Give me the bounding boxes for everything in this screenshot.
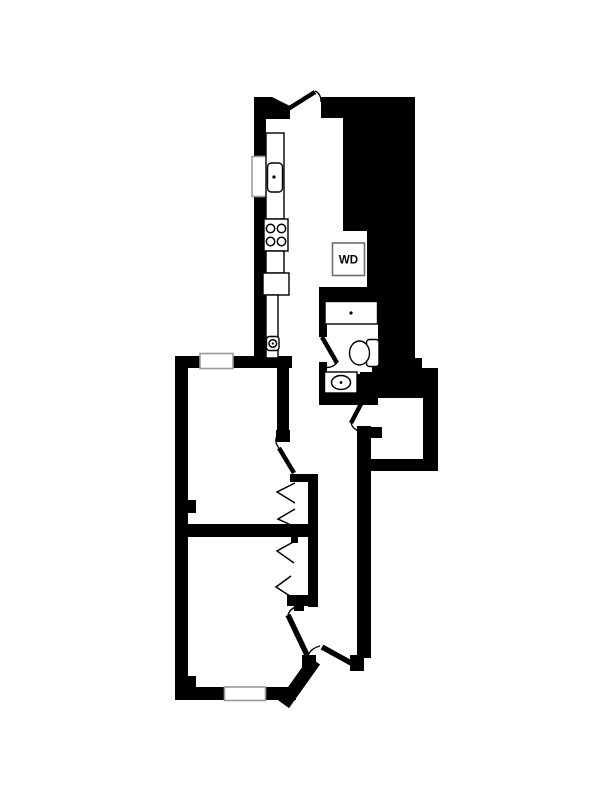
wall-rear-room-corner [415, 368, 438, 378]
closet-bifold-3 [277, 541, 295, 563]
wall-corridor-end-jamb [350, 655, 364, 671]
floor-plan-drawing: WD [0, 0, 612, 792]
entry-door-swing [315, 91, 321, 102]
washer-dryer-label: WD [339, 255, 358, 267]
kitchen [263, 133, 289, 358]
upper-room-door-leaf [279, 448, 294, 473]
jamb-upper-room-door [276, 430, 290, 442]
kitchen-counter-mid [266, 251, 284, 273]
wall-corridor-right-lower [357, 426, 371, 658]
window-lower-room [225, 687, 266, 701]
washer-dryer: WD [333, 243, 365, 276]
wall-right-of-wd [367, 231, 415, 292]
kitchen-sink-drain [272, 175, 275, 178]
wall-closet-right [308, 474, 318, 607]
corridor-door-leaf [322, 647, 351, 663]
toilet-bowl [350, 341, 370, 365]
vanity-drain [340, 381, 343, 384]
wall-rear-room-stub [357, 427, 382, 438]
closet-bifold-4 [276, 576, 293, 598]
window-kitchen [252, 157, 267, 197]
walls [175, 97, 438, 700]
jamb-chamfer-door [302, 655, 316, 669]
closet-bifold-2 [278, 509, 295, 526]
bathroom-door-leaf [322, 337, 337, 363]
wall-top-bar [321, 97, 415, 118]
rear-room-door-leaf [351, 404, 361, 423]
corridor-door-swing [308, 646, 320, 655]
wall-bath-top [319, 287, 415, 301]
floor-plan-page: WD [0, 0, 612, 792]
lower-room-door-leaf [288, 615, 307, 655]
wall-corridor-right-upper [357, 374, 371, 403]
refrigerator [263, 273, 289, 295]
stove [264, 219, 288, 251]
wall-right-column [343, 118, 415, 231]
bathtub-drain [349, 311, 352, 314]
wall-chamfer [288, 666, 312, 699]
pilaster-lower-room [188, 676, 196, 689]
window-upper-room [200, 354, 233, 369]
entry-door-leaf [288, 92, 315, 109]
closet-bifold-1 [277, 483, 295, 503]
small-basin-drain [272, 342, 274, 344]
pilaster-upper-room [188, 500, 196, 513]
